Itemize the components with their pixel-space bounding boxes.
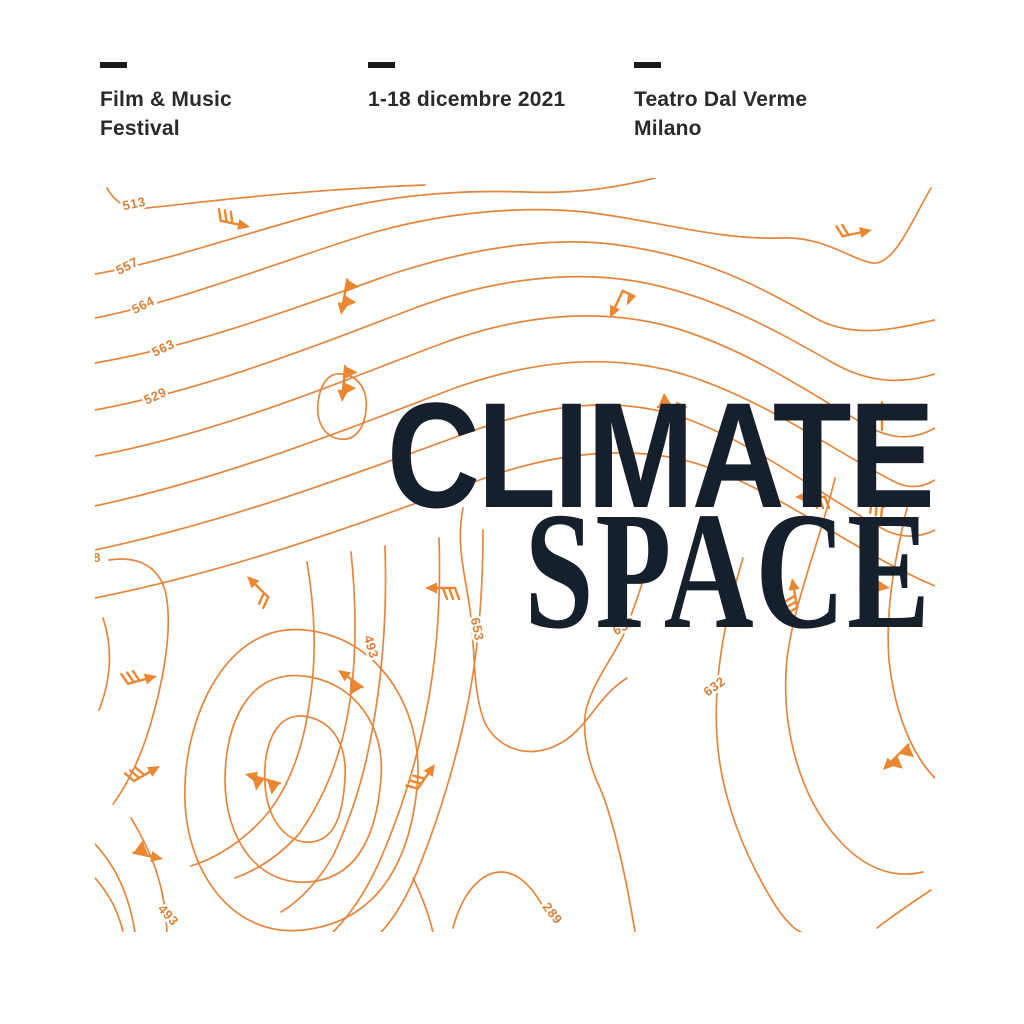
wind-barb-icon	[121, 665, 158, 690]
contour-line	[225, 676, 381, 883]
contour-line	[877, 890, 931, 928]
contour-label: 493	[155, 901, 182, 928]
venue-label-line2: Milano	[634, 114, 807, 143]
contour-line	[95, 188, 931, 318]
wind-barb-icon	[337, 366, 359, 403]
contour-label: 8	[95, 550, 101, 565]
contour-line	[453, 872, 545, 928]
contour-label: 653	[468, 616, 487, 642]
poster-canvas: Film & Music Festival 1-18 dicembre 2021…	[0, 0, 1024, 1024]
contour-line	[185, 630, 418, 931]
contour-line	[191, 562, 314, 866]
wind-barb-icon	[239, 572, 275, 608]
contour-line	[333, 538, 439, 932]
wind-barb-icon	[125, 756, 163, 787]
contour-label: 632	[701, 673, 729, 699]
header-column-venue: Teatro Dal Verme Milano	[634, 62, 807, 143]
header-column-dates: 1-18 dicembre 2021	[368, 62, 565, 114]
contour-line	[265, 716, 345, 842]
wind-barb-icon	[216, 209, 253, 232]
festival-label-line2: Festival	[100, 114, 232, 143]
contour-line	[95, 242, 935, 363]
contour-line	[107, 185, 425, 208]
contour-line	[281, 546, 386, 912]
header-column-festival: Film & Music Festival	[100, 62, 232, 143]
contour-label: 493	[361, 634, 382, 660]
festival-label-line1: Film & Music	[100, 85, 232, 114]
contour-label: 564	[129, 293, 157, 317]
column-dash	[634, 62, 661, 68]
contour-line	[318, 374, 367, 439]
contour-line	[99, 618, 109, 710]
contour-line	[413, 878, 433, 932]
contour-label: 563	[149, 336, 176, 359]
wind-barb-icon	[425, 583, 459, 600]
dates-label: 1-18 dicembre 2021	[368, 85, 565, 114]
contour-line	[95, 844, 135, 932]
column-dash	[368, 62, 395, 68]
wind-barb-icon	[836, 219, 873, 242]
title-space: SPACE	[525, 487, 932, 655]
contour-line	[95, 178, 655, 274]
venue-label-line1: Teatro Dal Verme	[634, 85, 807, 114]
wind-barb-icon	[242, 769, 282, 796]
contour-label: 529	[142, 384, 169, 407]
wind-barb-icon	[406, 758, 439, 795]
contour-label: 513	[121, 194, 147, 213]
contour-label: 289	[539, 899, 565, 927]
column-dash	[100, 62, 127, 68]
wind-barb-icon	[879, 741, 918, 780]
contour-label: 557	[113, 254, 140, 278]
wind-barb-icon	[336, 279, 360, 318]
contour-line	[95, 878, 123, 932]
